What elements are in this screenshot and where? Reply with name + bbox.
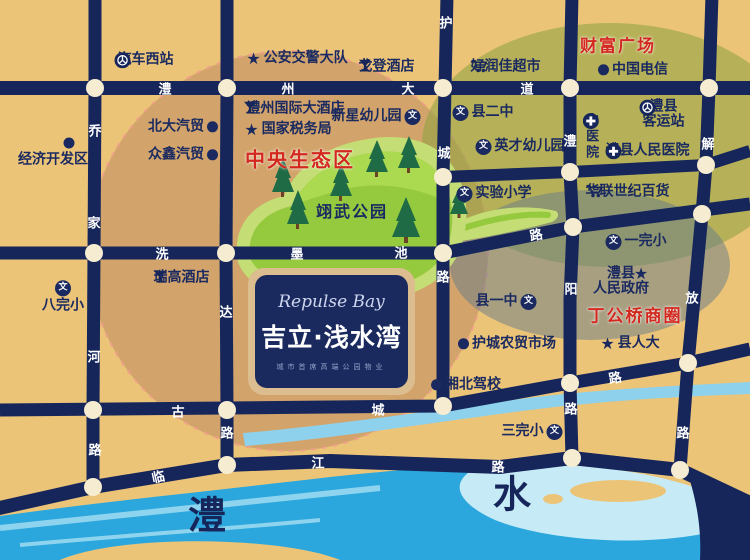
project-name-cn: 吉立·浅水湾: [261, 318, 402, 354]
park-label: 翊武公园: [316, 198, 388, 222]
project-name-en: Repulse Bay: [278, 292, 385, 312]
location-map: 澧州大道洗墨池路古城路临江路乔家河路达路护城路澧阳路解放路 汽车西站经济开发区北…: [0, 0, 750, 560]
project-card-inner: Repulse Bay 吉立·浅水湾 城市首席高端公园物业: [255, 275, 408, 388]
project-tagline: 城市首席高端公园物业: [277, 362, 387, 372]
project-card: Repulse Bay 吉立·浅水湾 城市首席高端公园物业: [248, 268, 415, 395]
river-li: 澧: [188, 485, 226, 540]
river-shui: 水: [493, 464, 531, 519]
